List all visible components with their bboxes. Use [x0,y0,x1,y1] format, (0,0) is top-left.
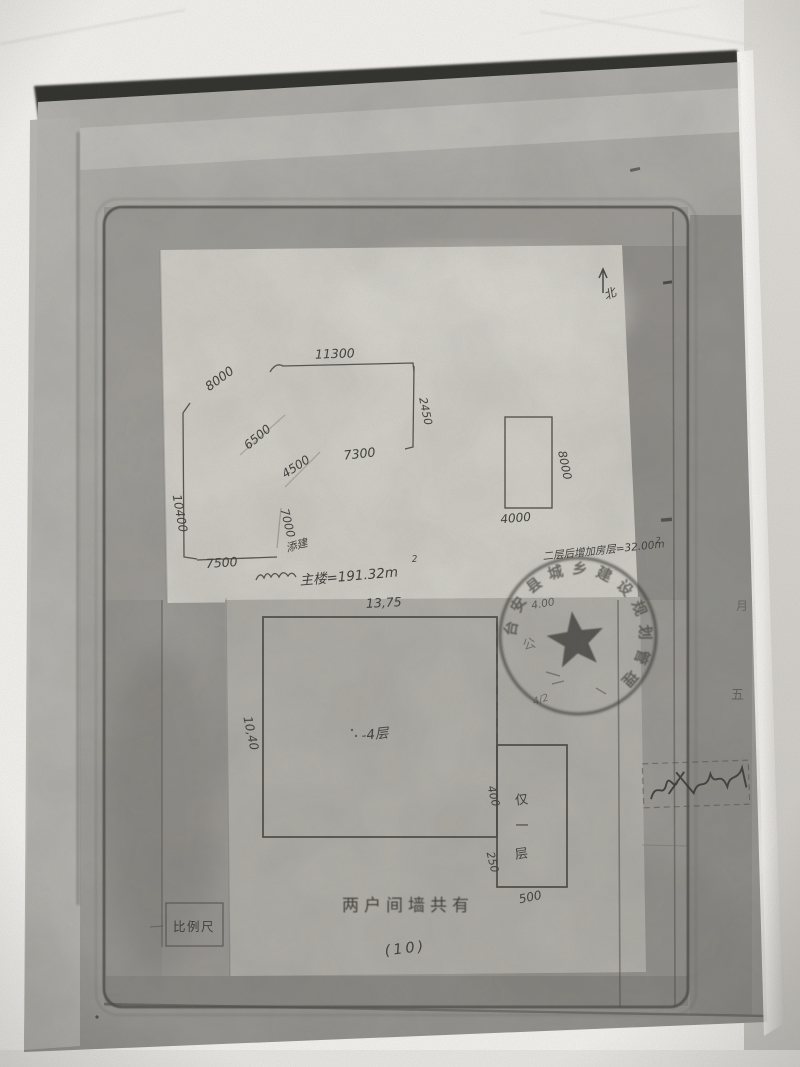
photo-of-document: 11300 8000 2450 6500 4500 7300 7000 1040… [0,0,800,1067]
document-photo-canvas: 11300 8000 2450 6500 4500 7300 7000 1040… [0,0,800,1067]
vignette-overlay [0,0,800,1067]
